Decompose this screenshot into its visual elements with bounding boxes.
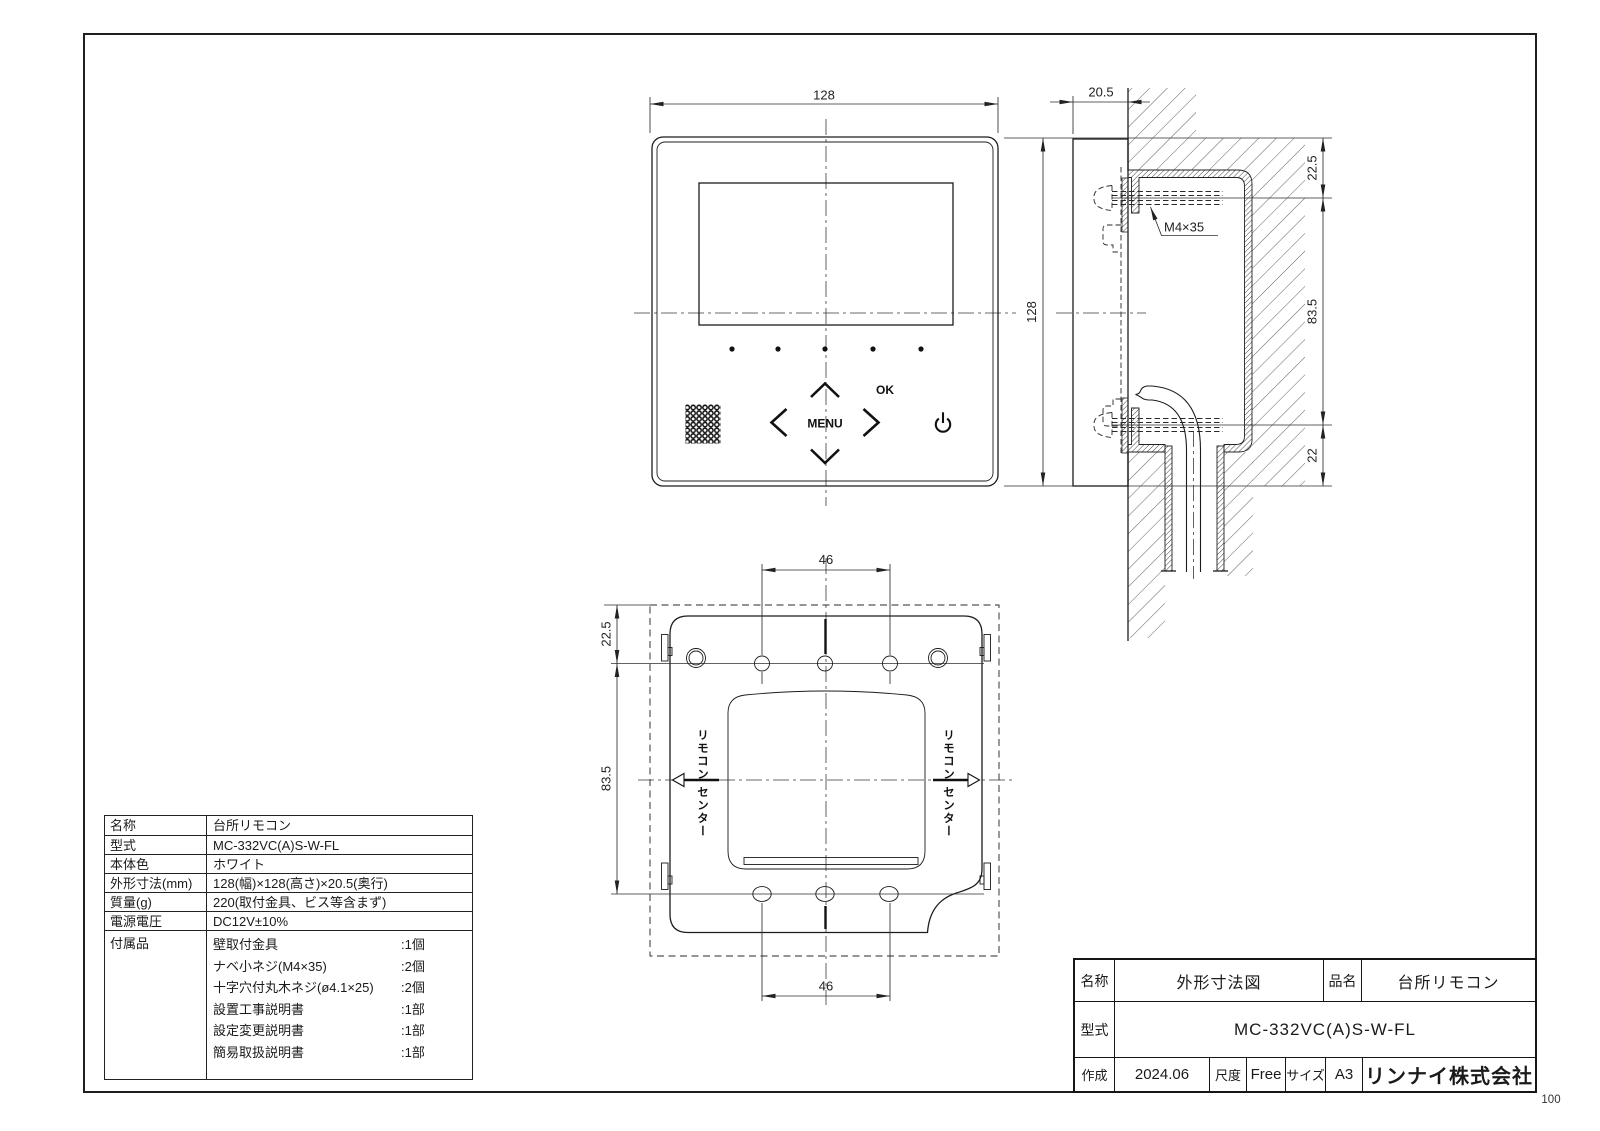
up-arrow-icon[interactable] bbox=[811, 384, 839, 398]
dim-width-label: 128 bbox=[813, 88, 835, 103]
spec-label: 電源電圧 bbox=[105, 912, 207, 930]
dim-bottom-holes-label: 46 bbox=[819, 979, 833, 994]
title-created-label: 作成 bbox=[1075, 1058, 1114, 1091]
wall-box-lower-wall bbox=[1128, 408, 1165, 452]
center-arrow-left-icon bbox=[673, 774, 685, 787]
menu-button[interactable]: MENU bbox=[807, 417, 842, 431]
list-item: 簡易取扱説明書:1部 bbox=[213, 1044, 472, 1066]
model-number: MC-332VC(A)S-W-FL bbox=[1114, 1002, 1535, 1057]
list-item: 壁取付金具:1個 bbox=[213, 936, 472, 958]
indicator-dots bbox=[729, 346, 923, 351]
spec-label: 名称 bbox=[105, 816, 207, 835]
accessories-list: 壁取付金具:1個 ナベ小ネジ(M4×35):2個 十字穴付丸木ネジ(ø4.1×2… bbox=[207, 931, 472, 1066]
wall-box-upper-wall bbox=[1128, 170, 1252, 452]
title-scale-label: 尺度 bbox=[1209, 1058, 1246, 1091]
dim-holes-span-label: 83.5 bbox=[599, 766, 614, 791]
spec-label: 質量(g) bbox=[105, 893, 207, 911]
sheet-size-value: A3 bbox=[1325, 1058, 1362, 1091]
right-arrow-icon[interactable] bbox=[864, 409, 879, 436]
front-width-dimension: 128 bbox=[650, 88, 998, 134]
list-item: ナベ小ネジ(M4×35):2個 bbox=[213, 958, 472, 980]
center-label-left-top: リモコン bbox=[695, 729, 709, 781]
spec-label: 付属品 bbox=[105, 931, 207, 1080]
plate-left-dimensions: 22.5 83.5 bbox=[599, 605, 652, 894]
drawing-sheet: MENU OK 128 128 bbox=[0, 0, 1600, 1131]
screw-callout-label: M4×35 bbox=[1164, 220, 1204, 235]
bracket-section-top bbox=[1122, 178, 1128, 232]
conduit-wall-left bbox=[1165, 446, 1172, 571]
plate-lower-bar bbox=[744, 858, 918, 865]
spec-label: 型式 bbox=[105, 836, 207, 854]
center-label-right-bottom: センター bbox=[941, 786, 955, 838]
side-section-view: 20.5 22.5 83.5 22 M4×35 bbox=[1050, 85, 1332, 642]
list-item: 設置工事説明書:1部 bbox=[213, 1001, 472, 1023]
ok-button[interactable]: OK bbox=[876, 383, 894, 397]
product-name: 台所リモコン bbox=[1361, 960, 1535, 1001]
title-block: 名称 外形寸法図 品名 台所リモコン 型式 MC-332VC(A)S-W-FL … bbox=[1073, 958, 1537, 1093]
list-item: 設定変更説明書:1部 bbox=[213, 1022, 472, 1044]
plate-holes bbox=[687, 649, 948, 902]
remote-side-profile bbox=[1073, 139, 1128, 486]
created-date: 2024.06 bbox=[1114, 1058, 1209, 1091]
table-row: 本体色 ホワイト bbox=[105, 854, 472, 873]
dim-top-holes-label: 46 bbox=[819, 552, 833, 567]
clip-hidden-top bbox=[1103, 225, 1121, 252]
spec-value: DC12V±10% bbox=[207, 913, 472, 930]
title-product-label: 品名 bbox=[1323, 960, 1361, 1001]
title-model-label: 型式 bbox=[1075, 1002, 1114, 1057]
title-size-label: サイズ bbox=[1285, 1058, 1325, 1091]
table-row: 電源電圧 DC12V±10% bbox=[105, 911, 472, 930]
speaker-grille-icon bbox=[686, 405, 721, 444]
table-row: 外形寸法(mm) 128(幅)×128(高さ)×20.5(奥行) bbox=[105, 873, 472, 892]
table-row: 名称 台所リモコン bbox=[105, 816, 472, 835]
center-arrow-right-icon bbox=[968, 774, 980, 787]
table-row-accessories: 付属品 壁取付金具:1個 ナベ小ネジ(M4×35):2個 十字穴付丸木ネジ(ø4… bbox=[105, 930, 472, 1080]
bracket-section-bottom bbox=[1122, 398, 1128, 453]
dim-middle-label: 83.5 bbox=[1305, 299, 1320, 324]
spec-value: 220(取付金具、ビス等含まず) bbox=[207, 894, 472, 911]
scale-value: Free bbox=[1246, 1058, 1285, 1091]
spec-value: MC-332VC(A)S-W-FL bbox=[207, 837, 472, 854]
table-row: 質量(g) 220(取付金具、ビス等含まず) bbox=[105, 892, 472, 911]
title-name-label: 名称 bbox=[1075, 960, 1114, 1001]
spec-table: 名称 台所リモコン 型式 MC-332VC(A)S-W-FL 本体色 ホワイト … bbox=[104, 815, 473, 1080]
drawing-title: 外形寸法図 bbox=[1114, 960, 1323, 1001]
dim-top-label: 22.5 bbox=[1305, 155, 1320, 180]
center-label-left-bottom: センター bbox=[695, 786, 709, 838]
company-name: リンナイ株式会社 bbox=[1362, 1058, 1535, 1091]
spec-value: 台所リモコン bbox=[207, 817, 472, 834]
screw-callout: M4×35 bbox=[1151, 207, 1219, 236]
table-row: 型式 MC-332VC(A)S-W-FL bbox=[105, 835, 472, 854]
conduit-wall-right bbox=[1217, 446, 1224, 571]
spec-value: 128(幅)×128(高さ)×20.5(奥行) bbox=[207, 875, 472, 892]
page-number: 100 bbox=[1533, 1094, 1569, 1106]
dim-height-label: 128 bbox=[1024, 301, 1039, 323]
dim-edge-to-holes-label: 22.5 bbox=[599, 621, 614, 646]
dim-bottom-label: 22 bbox=[1305, 448, 1320, 462]
power-icon[interactable] bbox=[936, 412, 950, 431]
spec-label: 外形寸法(mm) bbox=[105, 874, 207, 892]
left-arrow-icon[interactable] bbox=[772, 409, 787, 436]
spec-value: ホワイト bbox=[207, 856, 472, 873]
dim-depth-label: 20.5 bbox=[1088, 85, 1113, 100]
list-item: 十字穴付丸木ネジ(ø4.1×25):2個 bbox=[213, 979, 472, 1001]
spec-label: 本体色 bbox=[105, 855, 207, 873]
center-label-right-top: リモコン bbox=[941, 729, 955, 781]
down-arrow-icon[interactable] bbox=[811, 450, 839, 464]
